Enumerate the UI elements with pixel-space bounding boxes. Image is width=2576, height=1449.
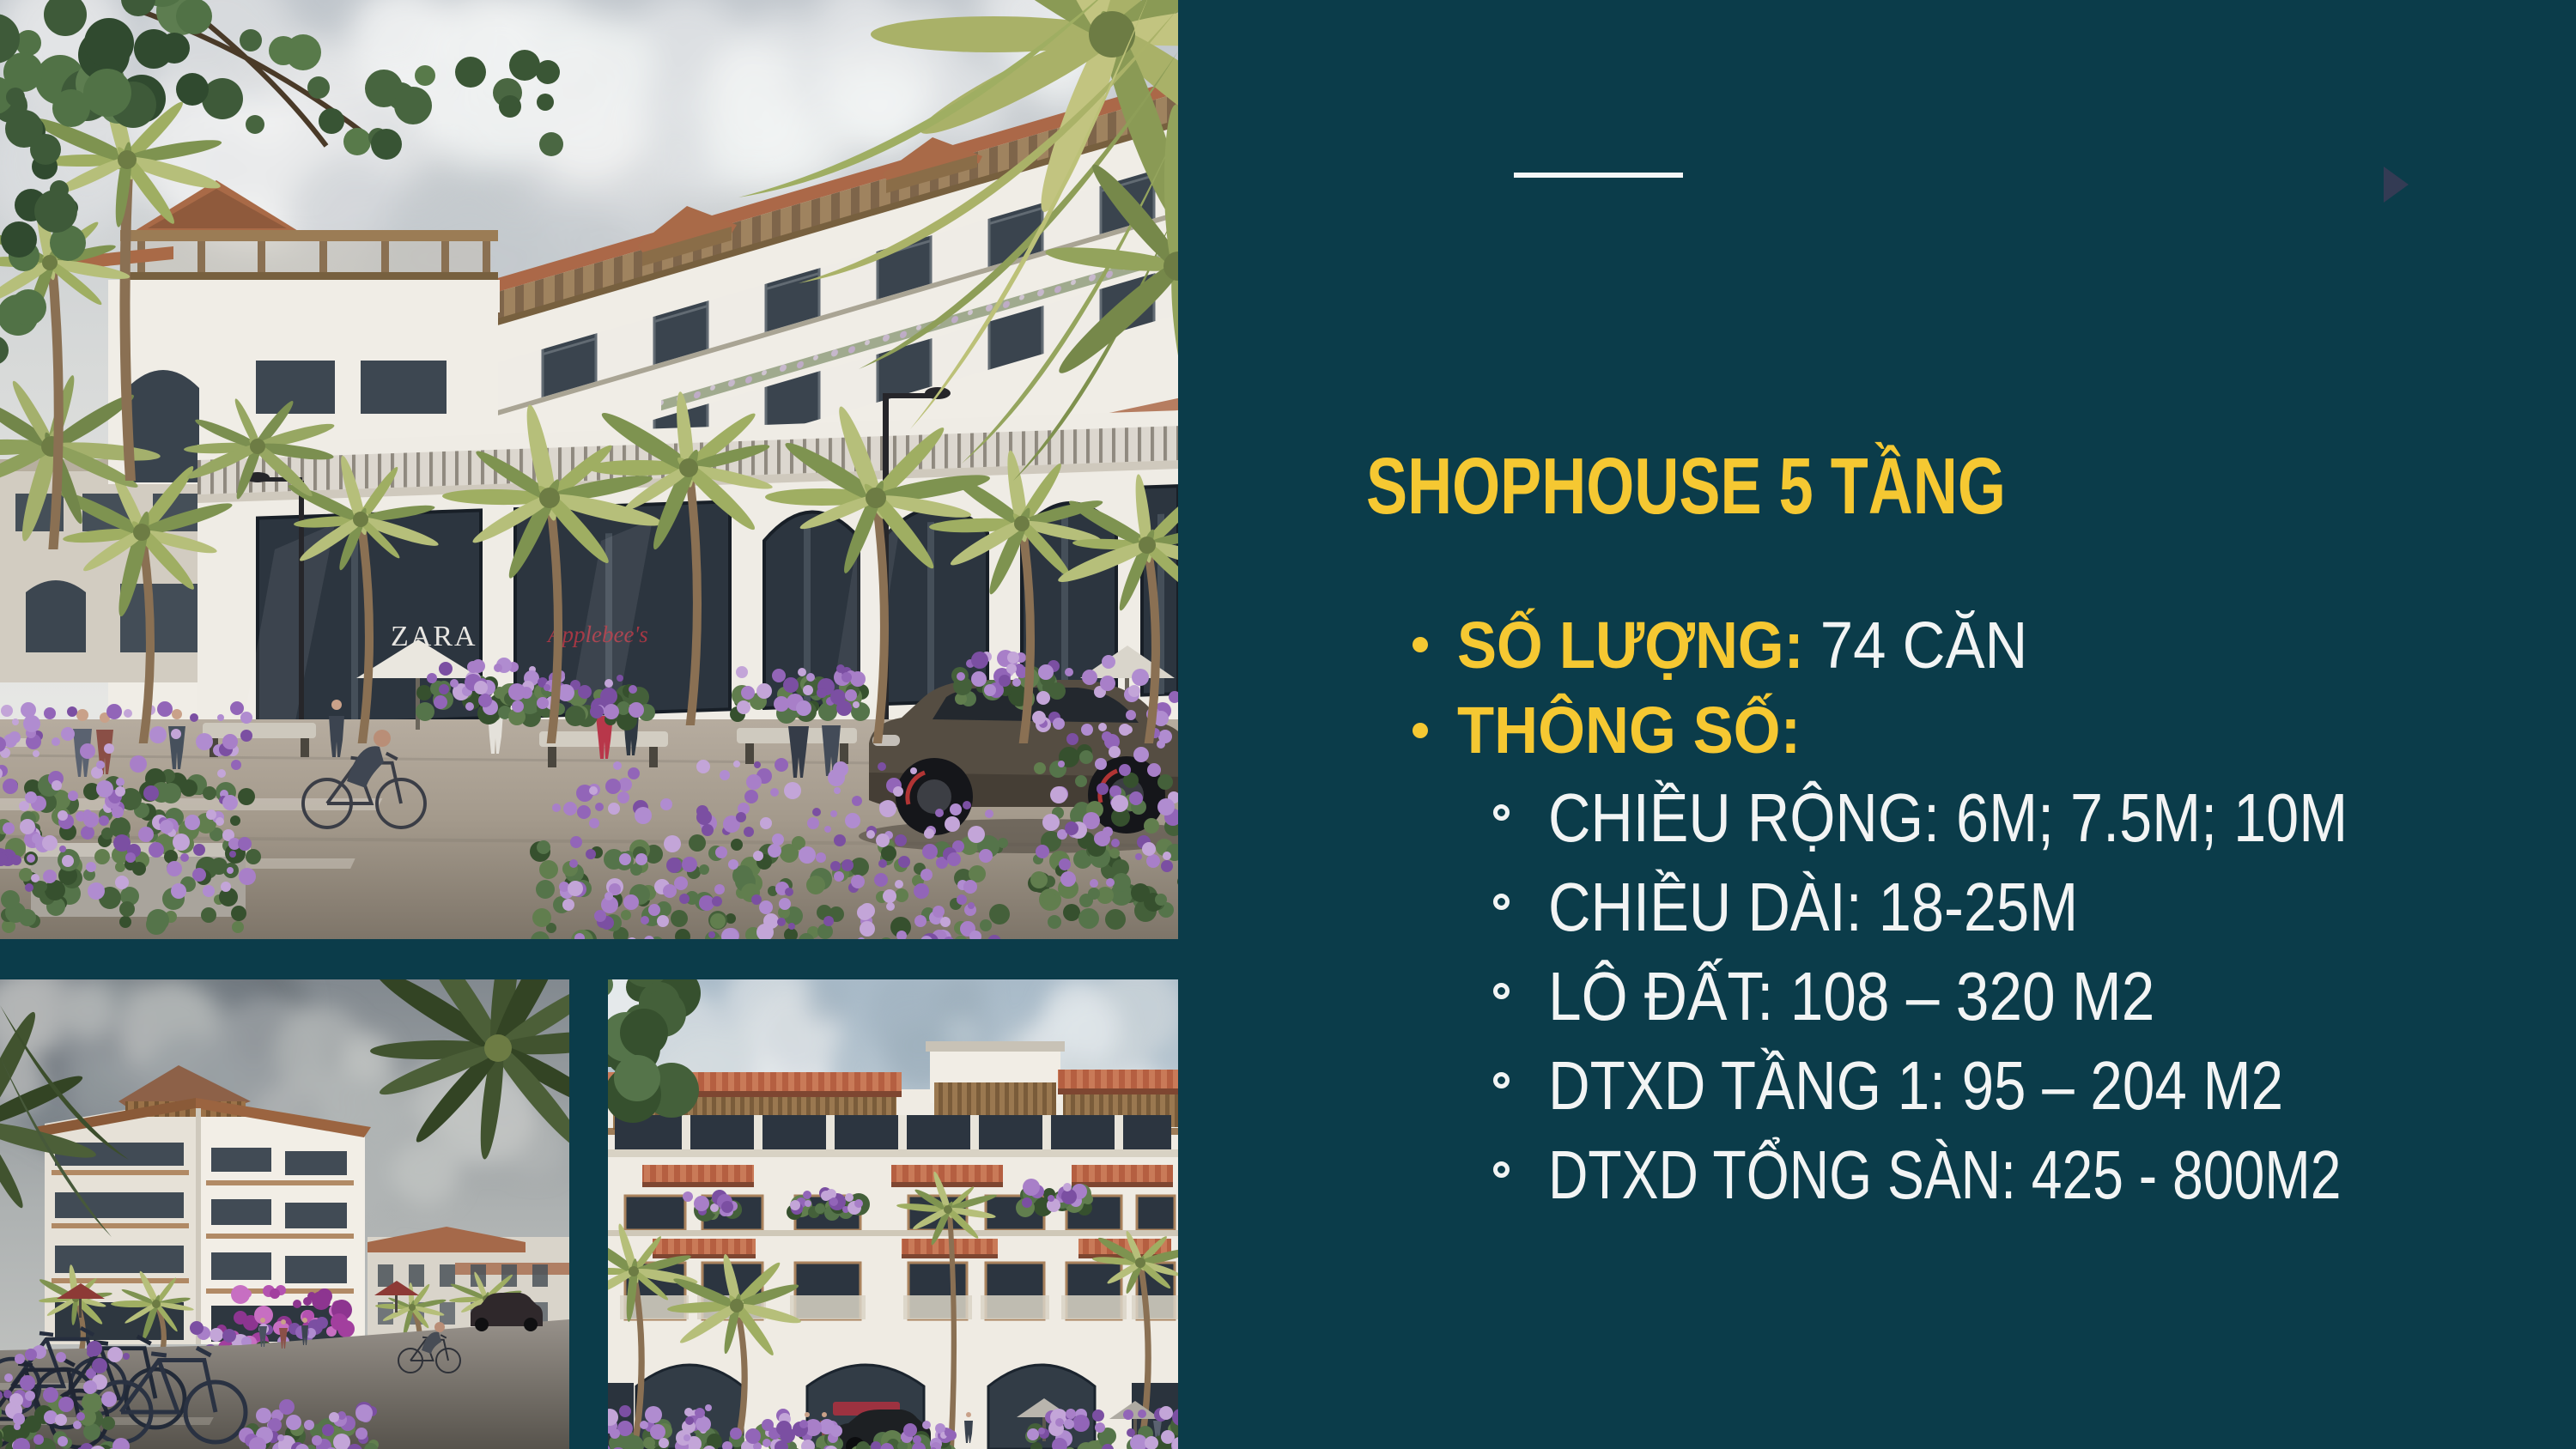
svg-text:ZARA: ZARA — [391, 621, 477, 652]
